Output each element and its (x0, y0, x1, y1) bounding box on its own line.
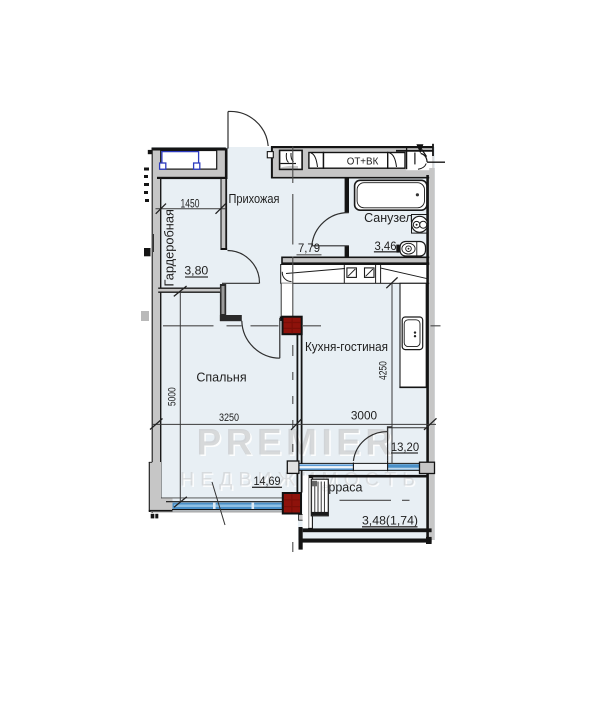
svg-text:14,69: 14,69 (253, 475, 280, 488)
svg-text:13,20: 13,20 (391, 439, 420, 454)
svg-text:ОТ+ВК: ОТ+ВК (347, 157, 379, 168)
svg-text:4250: 4250 (377, 361, 389, 380)
svg-text:НЕДВИЖИМОСТЬ: НЕДВИЖИМОСТЬ (180, 469, 421, 491)
svg-text:Спальня: Спальня (196, 370, 246, 384)
svg-text:Санузел: Санузел (364, 211, 413, 225)
svg-text:1450: 1450 (181, 198, 200, 211)
svg-text:Прихожая: Прихожая (229, 192, 280, 206)
svg-text:Гардеробная: Гардеробная (162, 209, 177, 286)
svg-text:5000: 5000 (166, 387, 178, 406)
svg-text:3000: 3000 (351, 409, 378, 423)
svg-text:3250: 3250 (219, 412, 239, 424)
svg-text:3,48(1,74): 3,48(1,74) (362, 514, 418, 528)
svg-text:7,79: 7,79 (298, 241, 320, 256)
svg-text:Кухня-гостиная: Кухня-гостиная (305, 339, 388, 353)
svg-text:3,80: 3,80 (184, 264, 208, 278)
svg-text:3,46: 3,46 (375, 239, 397, 254)
